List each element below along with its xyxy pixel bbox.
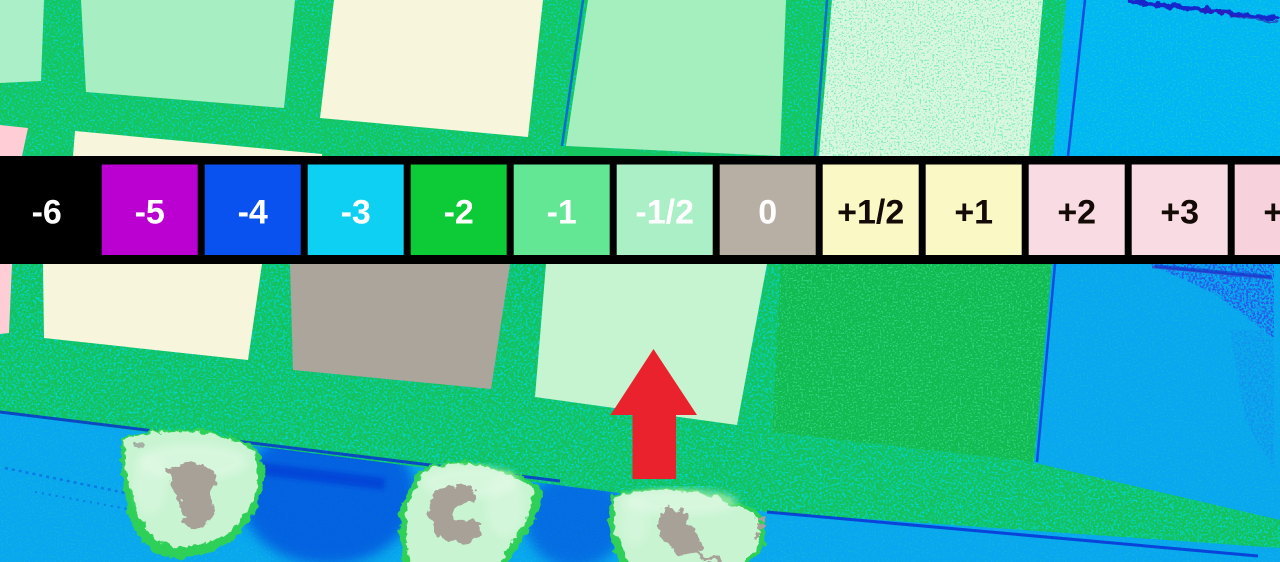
svg-text:+2: +2: [1057, 194, 1096, 232]
svg-text:+1: +1: [954, 194, 993, 232]
svg-text:-1: -1: [547, 194, 577, 232]
svg-text:+3: +3: [1160, 194, 1199, 232]
svg-text:+4: +4: [1263, 194, 1280, 232]
svg-text:+1/2: +1/2: [837, 194, 904, 232]
svg-text:0: 0: [758, 194, 777, 232]
svg-text:-3: -3: [341, 194, 371, 232]
svg-text:-1/2: -1/2: [635, 194, 694, 232]
svg-text:-5: -5: [135, 194, 165, 232]
svg-text:-6: -6: [32, 194, 62, 232]
svg-text:-2: -2: [444, 194, 474, 232]
svg-text:-4: -4: [238, 194, 268, 232]
